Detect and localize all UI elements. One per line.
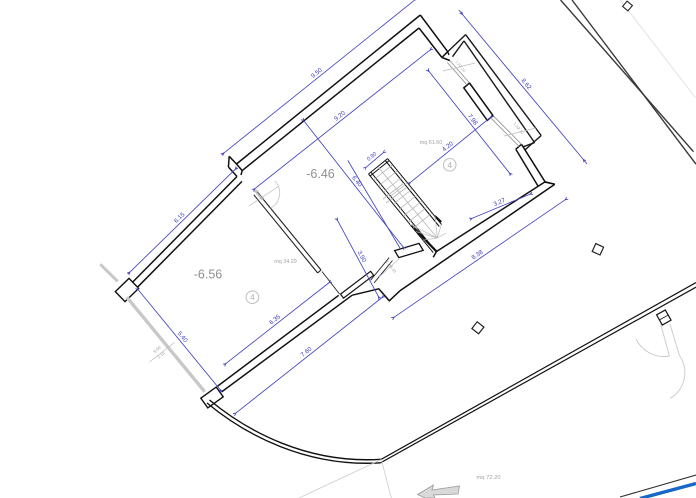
svg-text:mq 34.29: mq 34.29 xyxy=(274,259,296,265)
svg-text:-6.56: -6.56 xyxy=(194,268,223,282)
svg-text:-6.46: -6.46 xyxy=(306,167,335,181)
svg-text:4: 4 xyxy=(250,292,255,302)
svg-text:mq 72.20: mq 72.20 xyxy=(476,475,500,481)
svg-text:mq 61.60: mq 61.60 xyxy=(420,140,442,146)
svg-text:4: 4 xyxy=(447,160,452,170)
